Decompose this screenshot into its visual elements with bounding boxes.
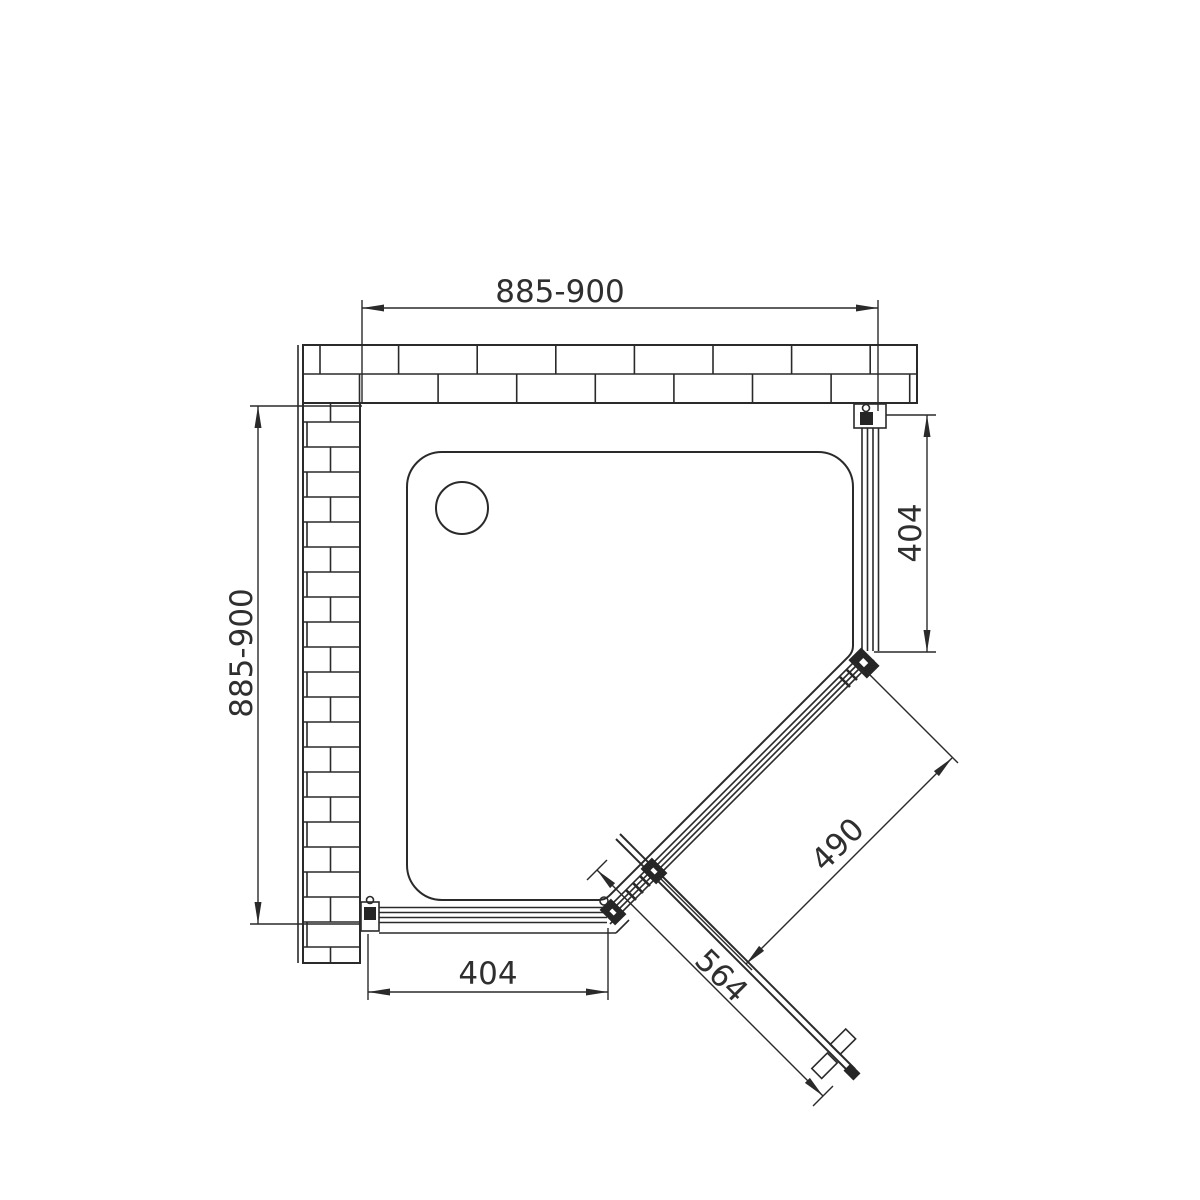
profile-screw: [863, 405, 870, 412]
wall-profile-top: [854, 404, 886, 428]
tray-outline: [407, 452, 853, 900]
dimension-label: 404: [458, 956, 517, 992]
dimension-label: 885-900: [495, 274, 625, 310]
handle-knob-outer: [830, 1029, 855, 1054]
technical-drawing-page: 885-900 885-900 404 404 490: [0, 0, 1200, 1200]
shower-tray: [407, 452, 853, 900]
dimension-label: 564: [687, 942, 754, 1009]
brick-pattern-top: [303, 345, 917, 403]
wall-profile-bottom: [361, 897, 379, 932]
dimension-line: [746, 758, 952, 964]
dimension-label: 490: [804, 811, 871, 878]
fixed-panel-bottom: [361, 897, 629, 934]
track-line: [610, 660, 868, 918]
dimension-door-opening: 490: [660, 671, 958, 970]
brick-pattern-left: [303, 403, 360, 963]
fixed-panel-right: [854, 404, 886, 651]
arrowhead: [934, 758, 952, 776]
arrowhead: [805, 1078, 823, 1096]
dimension-right-panel: 404: [874, 415, 936, 652]
door-end-cap-shape: [844, 1064, 861, 1081]
drain-circle: [436, 482, 488, 534]
dimension-label: 404: [893, 503, 929, 562]
arrowhead: [368, 989, 390, 996]
dimension-bottom-panel: 404: [368, 928, 608, 1000]
corner-bracket-bottom: [600, 897, 627, 925]
arrowhead: [924, 415, 931, 437]
arrowhead: [255, 406, 262, 428]
arrowhead: [856, 305, 878, 312]
dimension-label: 885-900: [224, 588, 260, 718]
arrowhead: [255, 902, 262, 924]
door-end-cap: [844, 1064, 861, 1081]
enclosure-plan-drawing: 885-900 885-900 404 404 490: [0, 0, 1200, 1200]
extension-line: [866, 671, 958, 763]
profile-clamp: [364, 907, 376, 920]
wall-top: [303, 345, 917, 403]
arrowhead: [586, 989, 608, 996]
arrowhead: [597, 870, 615, 888]
arrowhead: [924, 630, 931, 652]
arrowhead: [746, 946, 764, 964]
profile-clamp: [860, 412, 873, 425]
arrowhead: [362, 305, 384, 312]
dimension-top-width: 885-900: [362, 274, 878, 411]
dimension-door-width: 564: [587, 860, 833, 1106]
wall-left-outline: [303, 403, 360, 963]
wall-left: [298, 345, 360, 963]
